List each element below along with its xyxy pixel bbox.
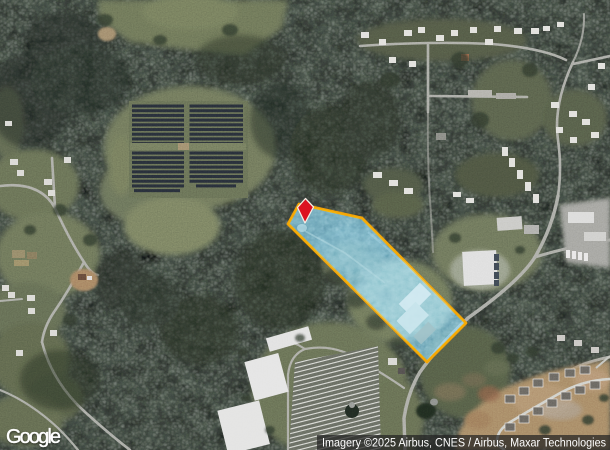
svg-text:Google: Google <box>6 426 61 448</box>
svg-text:Imagery ©2025 Airbus, CNES / A: Imagery ©2025 Airbus, CNES / Airbus, Max… <box>322 436 606 450</box>
